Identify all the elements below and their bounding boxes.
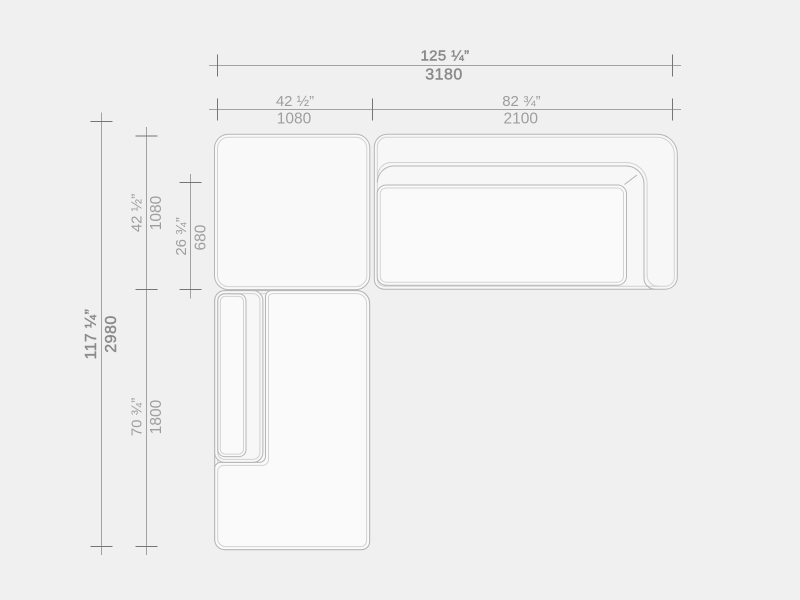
svg-text:42 ½”: 42 ½” xyxy=(276,93,314,110)
svg-text:70 ¾”: 70 ¾” xyxy=(129,398,146,436)
svg-text:3180: 3180 xyxy=(425,67,463,84)
svg-text:82 ¾”: 82 ¾” xyxy=(502,93,540,110)
svg-text:1080: 1080 xyxy=(148,195,165,230)
svg-text:117 ¼”: 117 ¼” xyxy=(83,309,100,360)
svg-text:2980: 2980 xyxy=(103,315,120,353)
svg-text:2100: 2100 xyxy=(503,110,538,127)
svg-text:1080: 1080 xyxy=(277,110,312,127)
svg-text:42 ½”: 42 ½” xyxy=(129,194,146,232)
svg-text:125 ¼”: 125 ¼” xyxy=(420,47,469,64)
svg-text:26 ¾”: 26 ¾” xyxy=(173,217,190,255)
svg-text:1800: 1800 xyxy=(148,399,165,434)
svg-text:680: 680 xyxy=(192,224,209,250)
